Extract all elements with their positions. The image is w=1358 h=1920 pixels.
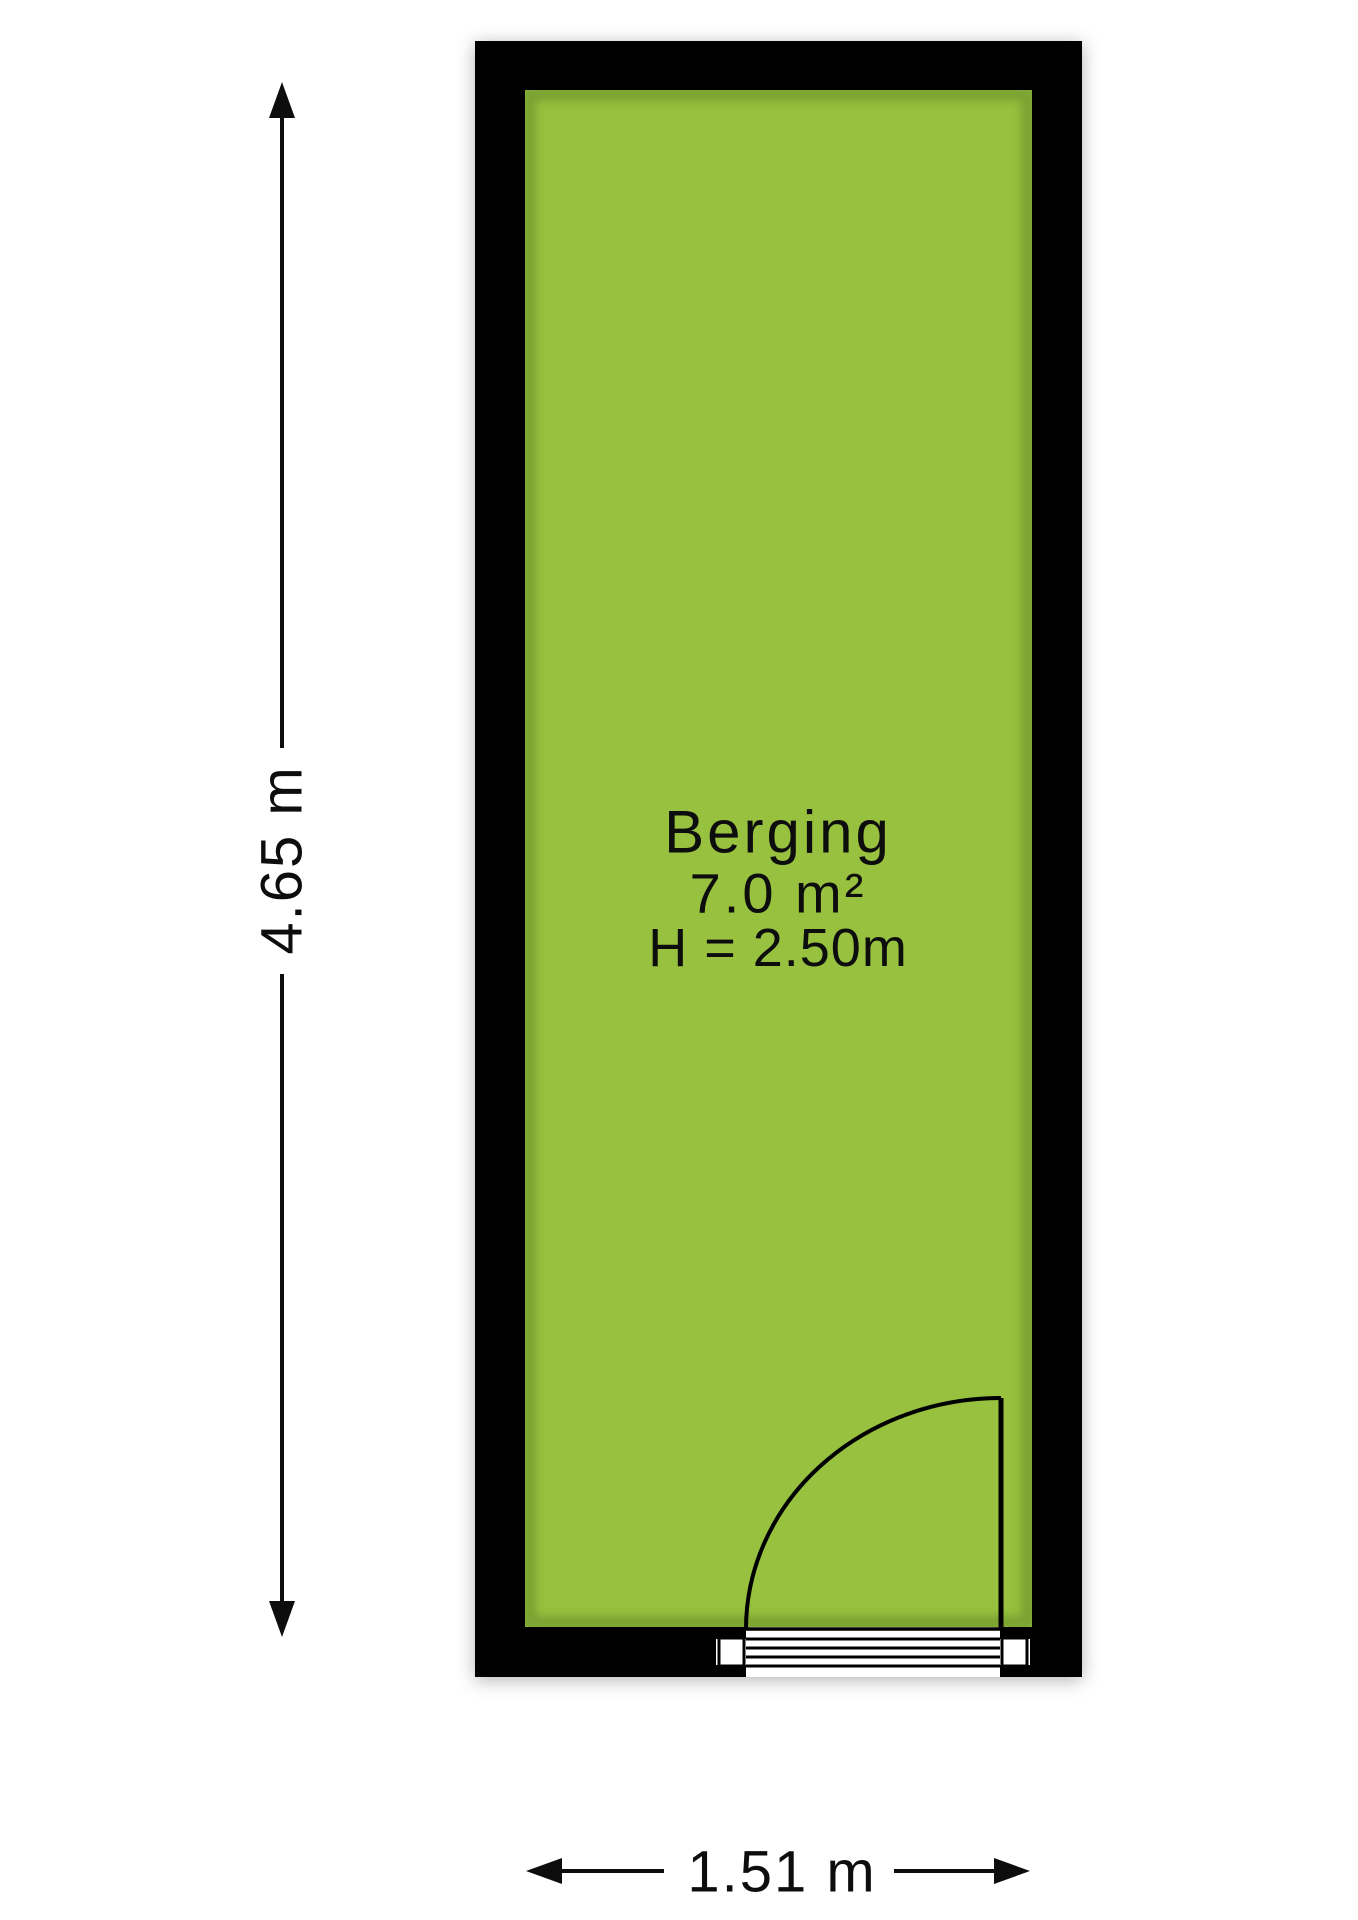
room-area-label: 7.0 m² bbox=[690, 862, 867, 925]
horizontal-dimension: 1.51 m bbox=[526, 1840, 1030, 1905]
room-height-label: H = 2.50m bbox=[648, 918, 908, 978]
door-jamb-right bbox=[1002, 1638, 1027, 1666]
door-jamb-left bbox=[719, 1638, 744, 1666]
arrow-down-icon bbox=[269, 1601, 295, 1637]
arrow-up-icon bbox=[269, 82, 295, 118]
arrow-left-icon bbox=[526, 1858, 562, 1884]
vertical-dimension: 4.65 m bbox=[250, 82, 315, 1637]
arrow-right-icon bbox=[994, 1858, 1030, 1884]
vertical-dimension-label: 4.65 m bbox=[250, 765, 315, 954]
floorplan-drawing: 4.65 m 1.51 m Berging 7.0 m² H = 2.50m bbox=[0, 0, 1358, 1920]
floorplan-page: 4.65 m 1.51 m Berging 7.0 m² H = 2.50m bbox=[0, 0, 1358, 1920]
door-opening bbox=[716, 1627, 1030, 1677]
horizontal-dimension-label: 1.51 m bbox=[687, 1840, 876, 1905]
room-name-label: Berging bbox=[664, 799, 892, 866]
